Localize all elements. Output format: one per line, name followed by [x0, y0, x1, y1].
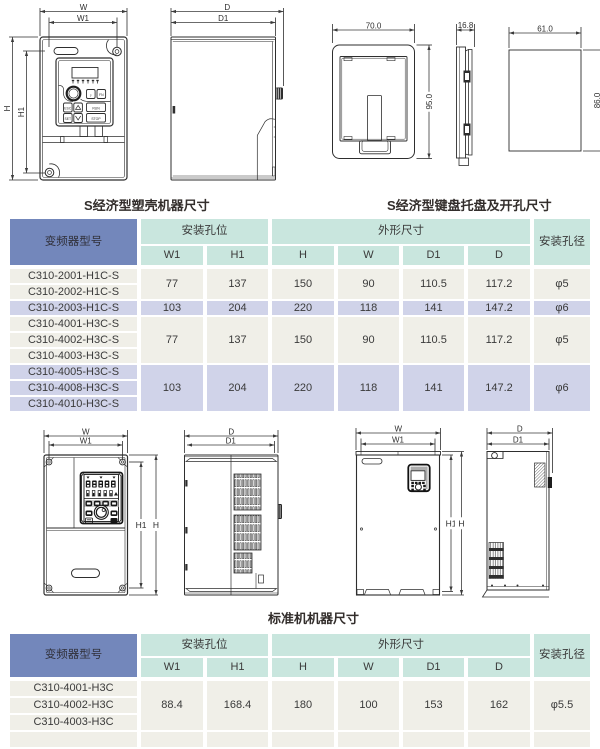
svg-text:FN: FN [99, 93, 104, 97]
svg-text:H: H [153, 520, 159, 530]
svg-text:D1: D1 [513, 436, 524, 445]
svg-text:95.0: 95.0 [425, 93, 434, 109]
svg-text:W1: W1 [77, 14, 90, 23]
svg-text:W1: W1 [392, 436, 405, 445]
svg-text:D: D [228, 428, 234, 437]
svg-text:H1: H1 [17, 106, 26, 117]
svg-text:H1: H1 [136, 520, 147, 530]
svg-text:W: W [82, 428, 90, 437]
svg-text:RUN: RUN [92, 107, 100, 111]
svg-text:H: H [3, 105, 12, 111]
svg-text:61.0: 61.0 [537, 25, 553, 34]
svg-text:70.0: 70.0 [366, 22, 382, 31]
svg-text:STOP: STOP [91, 117, 101, 121]
svg-text:D: D [517, 425, 523, 434]
svg-text:W: W [394, 425, 402, 434]
svg-text:D: D [224, 3, 230, 12]
svg-text:SET: SET [64, 117, 71, 121]
svg-text:ESC: ESC [64, 107, 72, 111]
svg-text:D1: D1 [226, 437, 237, 446]
svg-text:W1: W1 [80, 437, 93, 446]
svg-text:D1: D1 [218, 14, 229, 23]
svg-text:H: H [458, 518, 464, 528]
svg-text:♪: ♪ [90, 93, 92, 98]
svg-text:86.0: 86.0 [593, 92, 600, 108]
svg-text:16.8: 16.8 [458, 21, 474, 30]
svg-text:W: W [80, 3, 88, 12]
